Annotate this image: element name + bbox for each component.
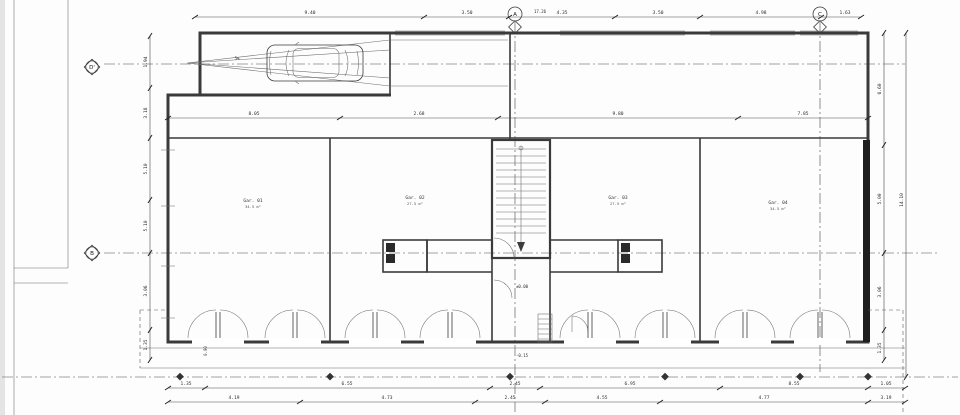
dim-text: 2.45 [509, 381, 520, 387]
dim-text: 9.40 [304, 10, 315, 16]
room-labels: Gar. 01 34.5 m² Gar. 02 27.5 m² Gar. 03 … [243, 195, 788, 211]
dimensions-left: 1.94 3.18 5.10 5.10 3.06 1.35 0.90 [143, 33, 208, 363]
dim-text: 3.06 [877, 286, 883, 297]
grid-lines [2, 22, 958, 412]
dim-text: 1.94 [143, 56, 149, 67]
dim-text: 3.50 [652, 10, 663, 16]
dim-text: 3.19 [880, 395, 891, 401]
grid-label-d: D' [89, 65, 95, 71]
door-width-dim: 0.90 [203, 346, 208, 356]
dimensions-right: 6.60 5.00 3.06 1.35 14.10 [877, 30, 908, 380]
dim-text: 4.55 [596, 395, 607, 401]
garage-bay: 5% [187, 40, 390, 86]
double-door [345, 310, 405, 338]
room-area: 27.5 m² [407, 201, 423, 206]
level-mark-entry: -0.15 [516, 353, 529, 358]
grid-bubble-d-prime: D' [84, 59, 100, 75]
lift-cell [386, 254, 395, 263]
car-top-view [267, 42, 363, 84]
room-area: 34.5 m² [770, 206, 786, 211]
grid-label-b: B [90, 251, 94, 257]
sheet-border-lines [14, 0, 68, 415]
grid-bubble-b: B [84, 245, 100, 261]
ramp-lane-lines [390, 40, 508, 86]
stair-arrow-head [517, 242, 525, 252]
dim-text: 8.55 [788, 381, 799, 387]
dim-text: 4.73 [381, 395, 392, 401]
stair-door-arc [494, 238, 514, 258]
dimensions-bottom: 1.35 6.55 2.45 6.95 8.55 1.05 4.19 4.73 … [165, 381, 908, 404]
room-area: 27.5 m² [610, 201, 626, 206]
double-door [560, 310, 620, 338]
dim-text: 4.77 [758, 395, 769, 401]
right-wall-section-fill [863, 140, 870, 342]
dim-text: 3.06 [143, 285, 149, 296]
room-area: 34.5 m² [245, 204, 261, 209]
double-doors [188, 310, 850, 345]
dim-text: 2.45 [504, 395, 515, 401]
stair-core [492, 140, 550, 258]
floorplan-sheet: D' B A C 17.26 5% [0, 0, 960, 415]
double-door [420, 310, 480, 338]
floorplan-svg: D' B A C 17.26 5% [0, 0, 960, 415]
corridor-door-arc [494, 280, 512, 298]
dim-text: 4.98 [755, 10, 766, 16]
double-door [188, 310, 248, 338]
double-door [715, 310, 775, 338]
entry-door-arc [572, 316, 588, 332]
dim-text: 5.10 [143, 163, 149, 174]
lift-cell [621, 254, 630, 263]
dim-text: 14.10 [899, 193, 905, 207]
dim-text: 6.60 [877, 83, 883, 94]
page-edge [0, 0, 5, 415]
dim-text: 4.35 [556, 10, 567, 16]
dim-text: 9.80 [612, 111, 623, 117]
dim-text: 1.05 [880, 381, 891, 387]
dim-text: 4.19 [228, 395, 239, 401]
outer-walls [168, 33, 868, 342]
level-mark-ground: ±0.00 [516, 284, 529, 289]
dim-text: 6.95 [624, 381, 635, 387]
dim-text: 1.35 [877, 342, 883, 353]
terrace-strip [140, 310, 905, 415]
dim-text: 5.10 [143, 220, 149, 231]
dim-text: 2.68 [413, 111, 424, 117]
double-door [635, 310, 695, 338]
lift-cell [621, 243, 630, 252]
dim-text: 8.05 [248, 111, 259, 117]
walls [161, 31, 870, 342]
dim-text: 6.55 [341, 381, 352, 387]
dim-text: 3.50 [461, 10, 472, 16]
dim-text: 1.63 [839, 10, 850, 16]
lift-cell [386, 243, 395, 252]
ramp-slope-label: 5% [235, 56, 240, 61]
double-door [265, 310, 325, 338]
dim-text: 1.35 [180, 381, 191, 387]
survey-diamond-markers [176, 373, 872, 381]
dim-text: 1.35 [143, 339, 149, 350]
total-width-annotation: 17.26 [534, 9, 547, 14]
partition-walls [168, 33, 868, 342]
dimensions-mid: 8.05 2.68 9.80 7.85 [165, 111, 871, 120]
dim-text: 5.00 [877, 193, 883, 204]
dim-text: 7.85 [797, 111, 808, 117]
sheet-frame [0, 0, 68, 415]
dim-text: 3.18 [143, 107, 149, 118]
dimensions-top: 9.40 3.50 4.35 3.50 4.98 1.63 [192, 10, 864, 19]
